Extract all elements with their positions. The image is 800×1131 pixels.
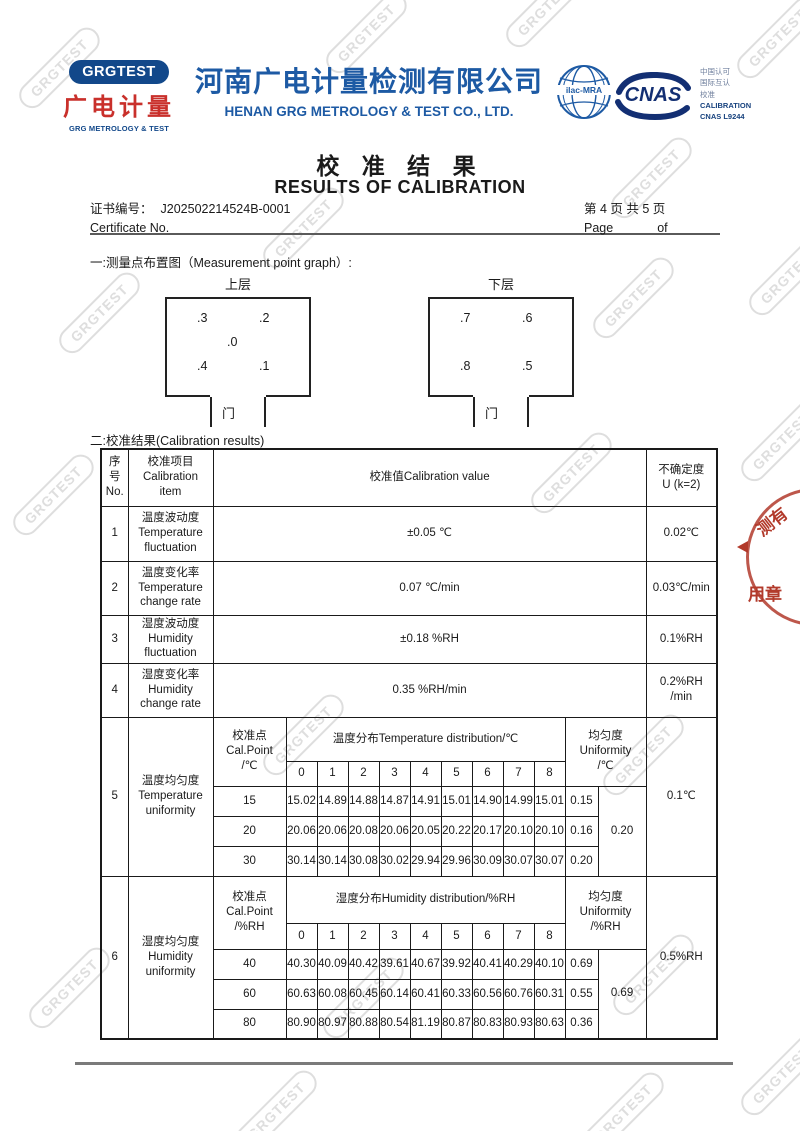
dist-value: 30.09 [472, 846, 503, 876]
row-value: ±0.05 ℃ [213, 506, 646, 561]
dist-value: 60.41 [410, 979, 441, 1009]
dist-value: 20.10 [503, 816, 534, 846]
header-no: 序 号 No. [101, 449, 128, 506]
dist-value: 40.30 [286, 949, 317, 979]
dist-value: 80.63 [534, 1009, 565, 1039]
dist-value: 30.07 [503, 846, 534, 876]
section1-heading: 一:测量点布置图（Measurement point graph）: [90, 252, 352, 271]
dist-value: 60.33 [441, 979, 472, 1009]
uniformity-value: 0.15 [565, 786, 598, 816]
row-no: 4 [101, 663, 128, 717]
dist-value: 40.42 [348, 949, 379, 979]
row-uncertainty: 0.1%RH [646, 615, 717, 663]
cnas-logo-icon: CNAS [613, 72, 693, 120]
dist-value: 40.29 [503, 949, 534, 979]
dist-value: 30.14 [317, 846, 348, 876]
dist-value: 14.88 [348, 786, 379, 816]
table-row: 1 温度波动度 Temperature fluctuation ±0.05 ℃ … [101, 506, 717, 561]
dist-value: 80.97 [317, 1009, 348, 1039]
section2-heading: 二:校准结果(Calibration results) [90, 430, 264, 449]
watermark-text: GRGTEST [501, 0, 592, 52]
row-uncertainty: 0.5%RH [646, 876, 717, 1039]
dist-value: 40.09 [317, 949, 348, 979]
ilac-mra-label: ilac-MRA [556, 85, 612, 95]
dist-value: 60.63 [286, 979, 317, 1009]
sensor-index: 4 [410, 761, 441, 786]
calibration-certificate-page: GRGTEST GRGTEST GRGTEST GRGTEST GRGTEST … [0, 0, 800, 1131]
certificate-info-row: 证书编号：J202502214524B-0001 Certificate No.… [90, 198, 720, 235]
row-no: 2 [101, 561, 128, 615]
uniformity-value: 0.16 [565, 816, 598, 846]
dist-value: 14.91 [410, 786, 441, 816]
dist-value: 39.92 [441, 949, 472, 979]
row-item: 湿度波动度 Humidity fluctuation [128, 615, 213, 663]
page-title-en: RESULTS OF CALIBRATION [0, 177, 800, 198]
table-row: 3 湿度波动度 Humidity fluctuation ±0.18 %RH 0… [101, 615, 717, 663]
row-no: 6 [101, 876, 128, 1039]
row-item: 温度均匀度 Temperature uniformity [128, 717, 213, 876]
certificate-number: J202502214524B-0001 [161, 202, 291, 216]
sensor-index: 2 [348, 761, 379, 786]
logo-cn-text: 广电计量 [56, 87, 182, 122]
row-item: 湿度均匀度 Humidity uniformity [128, 876, 213, 1039]
dist-value: 30.02 [379, 846, 410, 876]
measurement-point: .2 [259, 311, 269, 325]
dist-value: 39.61 [379, 949, 410, 979]
dist-value: 20.06 [286, 816, 317, 846]
accreditation-line: CNAS L9244 [700, 111, 751, 122]
dist-value: 40.10 [534, 949, 565, 979]
watermark-text: GRGTEST [54, 268, 145, 359]
watermark-text: GRGTEST [736, 1030, 800, 1121]
certificate-label-en: Certificate No. [90, 221, 291, 235]
dist-value: 20.17 [472, 816, 503, 846]
watermark-text: GRGTEST [588, 253, 679, 344]
row-no: 3 [101, 615, 128, 663]
dist-value: 40.67 [410, 949, 441, 979]
table-row-humidity-uniformity: 6 湿度均匀度 Humidity uniformity 校准点 Cal.Poin… [101, 876, 717, 923]
watermark-text: GRGTEST [8, 450, 99, 541]
dist-value: 14.90 [472, 786, 503, 816]
grg-logo: GRGTEST 广电计量 GRG METROLOGY & TEST [56, 60, 182, 133]
row-value: ±0.18 %RH [213, 615, 646, 663]
red-stamp-star-fragment [737, 541, 748, 553]
page-number-cn: 第 4 页 共 5 页 [584, 198, 668, 217]
accreditation-line: 校准 [700, 89, 751, 100]
uniformity-overall: 0.69 [598, 949, 646, 1039]
sensor-index: 4 [410, 923, 441, 949]
lower-layer-label: 下层 [428, 274, 574, 293]
accreditation-line: CALIBRATION [700, 100, 751, 111]
dist-value: 60.31 [534, 979, 565, 1009]
ilac-mra-logo-icon: ilac-MRA [556, 64, 612, 120]
watermark-text: GRGTEST [578, 1068, 669, 1131]
watermark-text: GRGTEST [744, 230, 800, 321]
table-row: 2 温度变化率 Temperature change rate 0.07 ℃/m… [101, 561, 717, 615]
row-uncertainty: 0.1℃ [646, 717, 717, 876]
dist-value: 80.87 [441, 1009, 472, 1039]
header-item: 校准项目 Calibration item [128, 449, 213, 506]
dist-value: 60.14 [379, 979, 410, 1009]
distribution-header: 温度分布Temperature distribution/℃ [286, 717, 565, 761]
certificate-label-cn: 证书编号： [90, 202, 153, 216]
company-name-en: HENAN GRG METROLOGY & TEST CO., LTD. [180, 104, 558, 119]
measurement-point: .3 [197, 311, 207, 325]
dist-value: 80.88 [348, 1009, 379, 1039]
dist-value: 80.90 [286, 1009, 317, 1039]
door-label: 门 [222, 403, 235, 422]
cal-point: 40 [213, 949, 286, 979]
dist-value: 30.14 [286, 846, 317, 876]
header-uncertainty: 不确定度 U (k=2) [646, 449, 717, 506]
dist-value: 29.96 [441, 846, 472, 876]
sensor-index: 0 [286, 761, 317, 786]
company-name-cn: 河南广电计量检测有限公司 [180, 60, 558, 100]
sensor-index: 8 [534, 923, 565, 949]
company-header: 河南广电计量检测有限公司 HENAN GRG METROLOGY & TEST … [180, 60, 558, 119]
table-header-row: 序 号 No. 校准项目 Calibration item 校准值Calibra… [101, 449, 717, 506]
row-value: 0.07 ℃/min [213, 561, 646, 615]
of-label-en: of [657, 221, 667, 235]
cnas-label: CNAS [621, 84, 685, 107]
dist-value: 20.05 [410, 816, 441, 846]
uniformity-value: 0.55 [565, 979, 598, 1009]
row-value: 0.35 %RH/min [213, 663, 646, 717]
dist-value: 20.22 [441, 816, 472, 846]
dist-value: 15.02 [286, 786, 317, 816]
cal-point: 80 [213, 1009, 286, 1039]
door-label: 门 [485, 403, 498, 422]
uniformity-value: 0.69 [565, 949, 598, 979]
certificate-number-block: 证书编号：J202502214524B-0001 Certificate No. [90, 198, 291, 235]
dist-value: 20.10 [534, 816, 565, 846]
measurement-point: .8 [460, 359, 470, 373]
dist-value: 30.07 [534, 846, 565, 876]
uniformity-value: 0.20 [565, 846, 598, 876]
sensor-index: 1 [317, 761, 348, 786]
dist-value: 15.01 [441, 786, 472, 816]
sensor-index: 5 [441, 761, 472, 786]
dist-value: 80.93 [503, 1009, 534, 1039]
dist-value: 60.76 [503, 979, 534, 1009]
measurement-point: .6 [522, 311, 532, 325]
dist-value: 14.99 [503, 786, 534, 816]
row-item: 温度变化率 Temperature change rate [128, 561, 213, 615]
cal-point: 60 [213, 979, 286, 1009]
measurement-point: .0 [227, 335, 237, 349]
accreditation-text: 中国认可 国际互认 校准 CALIBRATION CNAS L9244 [700, 66, 751, 122]
cal-point: 30 [213, 846, 286, 876]
sensor-index: 7 [503, 923, 534, 949]
uniformity-overall: 0.20 [598, 786, 646, 876]
accreditation-line: 中国认可 [700, 66, 751, 77]
distribution-header: 湿度分布Humidity distribution/%RH [286, 876, 565, 923]
accreditation-line: 国际互认 [700, 77, 751, 88]
measurement-point: .1 [259, 359, 269, 373]
chamber-box: .7 .6 .8 .5 门 [428, 297, 574, 397]
dist-value: 80.54 [379, 1009, 410, 1039]
dist-value: 80.83 [472, 1009, 503, 1039]
row-no: 1 [101, 506, 128, 561]
row-uncertainty: 0.03℃/min [646, 561, 717, 615]
dist-value: 29.94 [410, 846, 441, 876]
sensor-index: 6 [472, 761, 503, 786]
red-stamp-text: 用章 [748, 580, 782, 605]
grgtest-logo-pill: GRGTEST [69, 60, 169, 84]
dist-value: 20.06 [379, 816, 410, 846]
measurement-graph-upper: 上层 .3 .2 .0 .4 .1 门 [165, 274, 311, 397]
page-label-en: Page [584, 221, 613, 235]
upper-layer-label: 上层 [165, 274, 311, 293]
row-uncertainty: 0.2%RH /min [646, 663, 717, 717]
cal-point-header: 校准点 Cal.Point /%RH [213, 876, 286, 949]
sensor-index: 0 [286, 923, 317, 949]
dist-value: 40.41 [472, 949, 503, 979]
table-row-temperature-uniformity: 5 温度均匀度 Temperature uniformity 校准点 Cal.P… [101, 717, 717, 761]
dist-value: 15.01 [534, 786, 565, 816]
measurement-point: .5 [522, 359, 532, 373]
header-value: 校准值Calibration value [213, 449, 646, 506]
row-uncertainty: 0.02℃ [646, 506, 717, 561]
row-no: 5 [101, 717, 128, 876]
watermark-text: GRGTEST [231, 1066, 322, 1131]
dist-value: 30.08 [348, 846, 379, 876]
page-number-block: 第 4 页 共 5 页 Pageof [584, 198, 668, 235]
calibration-results-table: 序 号 No. 校准项目 Calibration item 校准值Calibra… [100, 448, 718, 1040]
dist-value: 60.45 [348, 979, 379, 1009]
cal-point-header: 校准点 Cal.Point /℃ [213, 717, 286, 786]
dist-value: 14.89 [317, 786, 348, 816]
chamber-box: .3 .2 .0 .4 .1 门 [165, 297, 311, 397]
cal-point: 15 [213, 786, 286, 816]
measurement-point: .7 [460, 311, 470, 325]
table-row: 4 湿度变化率 Humidity change rate 0.35 %RH/mi… [101, 663, 717, 717]
sensor-index: 6 [472, 923, 503, 949]
sensor-index: 7 [503, 761, 534, 786]
row-item: 湿度变化率 Humidity change rate [128, 663, 213, 717]
sensor-index: 8 [534, 761, 565, 786]
row-item: 温度波动度 Temperature fluctuation [128, 506, 213, 561]
dist-value: 14.87 [379, 786, 410, 816]
uniformity-header: 均匀度 Uniformity /%RH [565, 876, 646, 949]
page-title-cn: 校 准 结 果 [0, 147, 800, 181]
logo-en-text: GRG METROLOGY & TEST [56, 124, 182, 133]
dist-value: 20.06 [317, 816, 348, 846]
watermark-text: GRGTEST [736, 396, 800, 487]
uniformity-value: 0.36 [565, 1009, 598, 1039]
dist-value: 20.08 [348, 816, 379, 846]
sensor-index: 2 [348, 923, 379, 949]
measurement-point: .4 [197, 359, 207, 373]
dist-value: 60.56 [472, 979, 503, 1009]
measurement-graph-lower: 下层 .7 .6 .8 .5 门 [428, 274, 574, 397]
cal-point: 20 [213, 816, 286, 846]
sensor-index: 1 [317, 923, 348, 949]
uniformity-header: 均匀度 Uniformity /℃ [565, 717, 646, 786]
footer-divider [75, 1062, 733, 1065]
dist-value: 81.19 [410, 1009, 441, 1039]
sensor-index: 3 [379, 923, 410, 949]
sensor-index: 3 [379, 761, 410, 786]
sensor-index: 5 [441, 923, 472, 949]
dist-value: 60.08 [317, 979, 348, 1009]
